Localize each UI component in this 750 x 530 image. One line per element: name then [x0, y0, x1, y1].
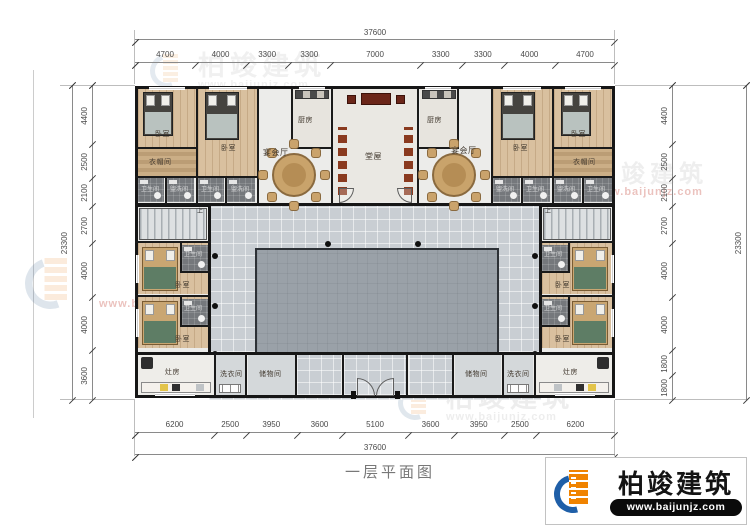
dimension-value: 2100: [80, 184, 89, 202]
wall: [539, 271, 570, 273]
wall: [180, 271, 211, 273]
window: [565, 87, 601, 90]
wall: [135, 295, 211, 297]
left-dimension-segments: 4400 2500 2100 2700 4000 4000 3600: [76, 86, 93, 400]
stove-counter: [539, 382, 609, 393]
wall: [135, 176, 259, 178]
wall: [452, 354, 454, 396]
wall: [502, 354, 504, 396]
stairs-up-label: 上: [197, 209, 204, 215]
entry-hall: [344, 355, 406, 395]
window: [555, 393, 595, 396]
wall: [568, 297, 570, 327]
room-label: 卧室: [221, 145, 236, 152]
bed: [143, 92, 173, 136]
dimension-value: 4400: [660, 107, 669, 125]
column: [532, 253, 538, 259]
wall: [582, 176, 584, 204]
bed: [572, 247, 608, 291]
dimension-value: 1800: [660, 379, 669, 397]
room-label: 卧室: [555, 282, 570, 289]
dimension-value: 3600: [297, 418, 343, 432]
wall: [180, 325, 211, 327]
stove: [141, 357, 153, 369]
wall: [539, 325, 570, 327]
chair: [347, 95, 356, 104]
room-label: 卧室: [513, 145, 528, 152]
dimension-value: 37600: [135, 26, 615, 39]
room-label: 衣帽间: [149, 159, 172, 166]
wall: [552, 88, 554, 204]
dimension-value: 6200: [135, 418, 214, 432]
dimension-value: 3950: [246, 418, 296, 432]
room-label: 宴会厅: [451, 147, 477, 155]
wall: [165, 176, 167, 204]
dimension-value: 6200: [536, 418, 615, 432]
dimension-value: 37600: [135, 441, 615, 454]
wall: [196, 88, 198, 204]
brand-name: 柏竣建筑: [608, 464, 744, 501]
room-label: 卧室: [175, 282, 190, 289]
room-label: 盥洗间: [231, 187, 249, 193]
column: [212, 303, 218, 309]
altar-table: [361, 93, 391, 105]
dimension-value: 23300: [734, 232, 743, 254]
chair: [396, 95, 405, 104]
brand-logo-icon: [25, 255, 124, 354]
wall: [521, 176, 523, 204]
room-label: 卫生间: [201, 187, 219, 193]
drawing-title: 一层平面图: [300, 461, 480, 482]
left-dimension-total: 23300: [57, 86, 73, 400]
door-jamb: [395, 391, 400, 399]
room-bathroom: [542, 299, 568, 325]
wall: [135, 241, 211, 243]
wall: [568, 243, 570, 273]
extension-line: [615, 399, 746, 400]
bottom-dimension-total: 37600: [135, 441, 615, 455]
room-label: 盥洗间: [496, 187, 514, 193]
room-label: 卫生间: [141, 187, 159, 193]
dimension-value: 4000: [195, 48, 246, 62]
walkway: [409, 355, 452, 395]
sheet-frame-line: [33, 70, 34, 418]
wall: [214, 354, 216, 396]
room-label: 卧室: [555, 336, 570, 343]
chair-row: [338, 127, 347, 195]
room-label: 盥洗间: [557, 187, 575, 193]
brand-logo-icon: [554, 466, 604, 518]
wall: [342, 354, 344, 396]
dimension-value: 4400: [80, 107, 89, 125]
dimension-value: 3300: [420, 48, 462, 62]
walkway: [297, 355, 341, 395]
room-label: 宴会厅: [263, 149, 289, 157]
right-dimension-total: 23300: [731, 86, 747, 400]
washing-machine: [219, 384, 241, 393]
wall: [295, 354, 297, 396]
bed: [142, 301, 178, 345]
room-label: 卫生间: [184, 306, 202, 312]
bottom-dimension-segments: 6200 2500 3950 3600 5100 3600 3950 2500 …: [135, 418, 615, 433]
room-bathroom: [182, 299, 208, 325]
staircase: [543, 208, 611, 240]
dimension-value: 4000: [660, 316, 669, 334]
wall: [245, 354, 247, 396]
column: [415, 241, 421, 247]
column: [212, 253, 218, 259]
room-label: 厨房: [427, 117, 442, 124]
dimension-value: 4000: [80, 262, 89, 280]
room-label: 盥洗间: [170, 187, 188, 193]
stove: [597, 357, 609, 369]
room-label: 灶房: [563, 369, 578, 376]
dimension-value: 3600: [80, 367, 89, 385]
room-label: 储物间: [465, 371, 488, 378]
room-label: 堂屋: [365, 153, 382, 161]
bed: [561, 92, 591, 136]
brand-logo-block: 柏竣建筑 www.baijunjz.com: [545, 457, 747, 525]
window: [155, 393, 195, 396]
room-label: 卧室: [571, 131, 586, 138]
wall: [180, 297, 182, 327]
brand-url: www.baijunjz.com: [610, 499, 742, 516]
column: [325, 241, 331, 247]
kitchen-counter: [422, 90, 456, 99]
kitchen-counter: [295, 90, 329, 99]
dimension-value: 4700: [135, 48, 195, 62]
chair-row: [404, 127, 413, 195]
room-label: 卧室: [155, 131, 170, 138]
dimension-value: 4700: [555, 48, 615, 62]
wall: [491, 176, 615, 178]
door-jamb: [351, 391, 356, 399]
room-label: 储物间: [259, 371, 282, 378]
dimension-value: 3300: [246, 48, 288, 62]
dimension-value: 2500: [80, 153, 89, 171]
bed: [142, 247, 178, 291]
right-dimension-segments: 4400 2500 2100 2700 4000 4000 1800 1800: [656, 86, 673, 400]
dimension-value: 3300: [288, 48, 330, 62]
stove-counter: [141, 382, 211, 393]
room-label: 卫生间: [544, 252, 562, 258]
window: [611, 309, 614, 337]
room-label: 灶房: [165, 369, 180, 376]
stairs-up-label: 上: [545, 209, 552, 215]
room-label: 厨房: [298, 117, 313, 124]
bed: [572, 301, 608, 345]
window: [503, 87, 541, 90]
dimension-value: 23300: [60, 232, 69, 254]
wall: [539, 295, 615, 297]
wall: [225, 176, 227, 204]
room-label: 衣帽间: [573, 159, 596, 166]
column: [532, 303, 538, 309]
bed: [501, 92, 535, 140]
dimension-value: 2700: [80, 217, 89, 235]
room-bathroom: [542, 245, 568, 271]
bed: [205, 92, 239, 140]
dimension-value: 3950: [454, 418, 504, 432]
room-label: 洗衣间: [507, 371, 530, 378]
dimension-value: 7000: [330, 48, 419, 62]
dimension-value: 4000: [80, 316, 89, 334]
wall: [534, 354, 536, 396]
washing-machine: [507, 384, 529, 393]
wall: [406, 354, 408, 396]
window: [149, 87, 185, 90]
dimension-value: 4000: [504, 48, 555, 62]
dimension-value: 1800: [660, 355, 669, 373]
dimension-value: 2500: [214, 418, 246, 432]
dimension-value: 4000: [660, 262, 669, 280]
window: [136, 255, 139, 283]
room-label: 卧室: [175, 336, 190, 343]
dimension-value: 3600: [408, 418, 454, 432]
room-label: 卫生间: [526, 187, 544, 193]
room-label: 卫生间: [184, 252, 202, 258]
room-label: 卫生间: [544, 306, 562, 312]
floor-plan-sheet: 柏竣建筑 www.baijunjz.com 柏竣建筑 www.baijunjz.…: [0, 0, 750, 530]
room-label: 卫生间: [587, 187, 605, 193]
wall: [180, 243, 182, 273]
window: [209, 87, 247, 90]
window: [611, 255, 614, 283]
top-dimension-segments: 4700 4000 3300 3300 7000 3300 3300 4000 …: [135, 48, 615, 63]
wall: [539, 241, 615, 243]
dimension-value: 2500: [660, 153, 669, 171]
dimension-value: 3300: [462, 48, 504, 62]
dimension-value: 2500: [504, 418, 536, 432]
dimension-value: 2700: [660, 217, 669, 235]
room-label: 洗衣间: [220, 371, 243, 378]
window: [136, 309, 139, 337]
wall: [554, 147, 615, 149]
extension-line: [615, 85, 746, 86]
dimension-value: 5100: [342, 418, 407, 432]
dimension-value: 2100: [660, 184, 669, 202]
room-bathroom: [182, 245, 208, 271]
floor-plan: 卧室 卧室 宴会厅 厨房 堂屋 厨房 宴会厅 卧室 卧室 衣帽间 衣帽间 卫生间…: [135, 85, 615, 400]
wall: [135, 147, 196, 149]
top-dimension-total: 37600: [135, 26, 615, 40]
